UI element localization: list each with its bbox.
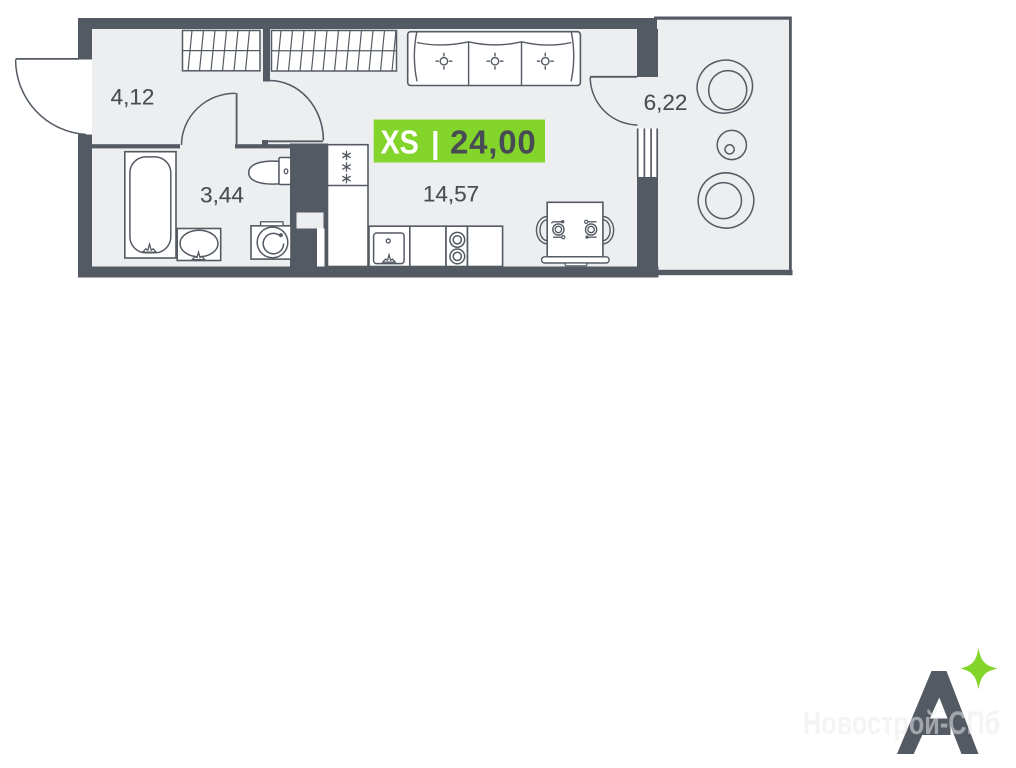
svg-text:Новострой-СПб: Новострой-СПб [803,706,1000,742]
svg-text:|: | [431,125,440,160]
svg-text:XS: XS [381,123,419,160]
svg-text:24,00: 24,00 [450,123,537,160]
svg-text:14,57: 14,57 [423,182,479,207]
svg-text:6,22: 6,22 [644,90,688,115]
svg-text:4,12: 4,12 [111,85,155,110]
svg-text:3,44: 3,44 [200,183,244,208]
